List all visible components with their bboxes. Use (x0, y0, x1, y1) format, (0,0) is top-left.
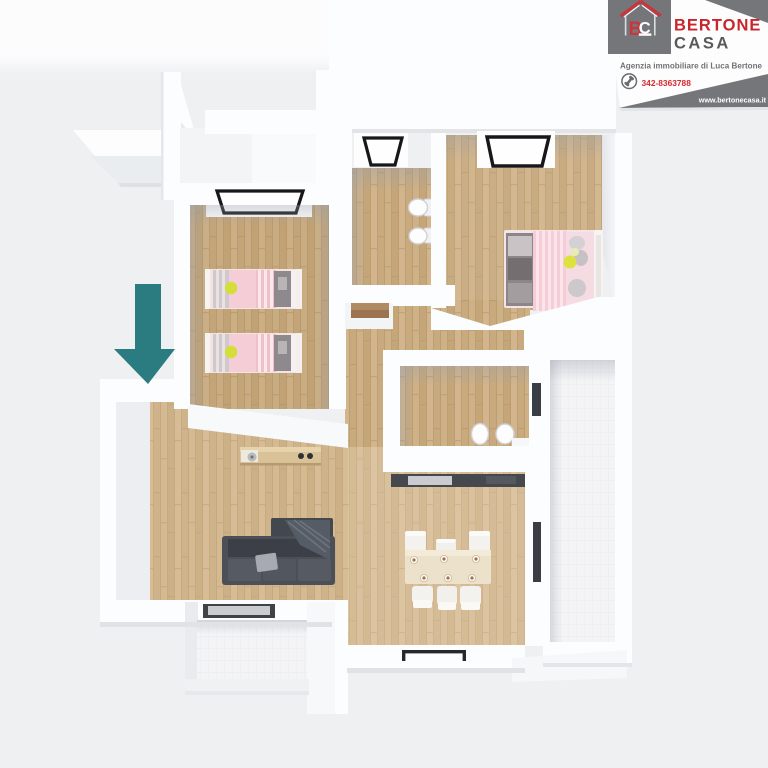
svg-text:342-8363788: 342-8363788 (642, 78, 692, 88)
svg-text:www.bertonecasa.it: www.bertonecasa.it (698, 96, 767, 105)
svg-text:BERTONE: BERTONE (674, 17, 761, 35)
svg-text:Agenzia immobiliare di Luca Be: Agenzia immobiliare di Luca Bertone (620, 61, 763, 70)
svg-text:CASA: CASA (674, 35, 731, 53)
